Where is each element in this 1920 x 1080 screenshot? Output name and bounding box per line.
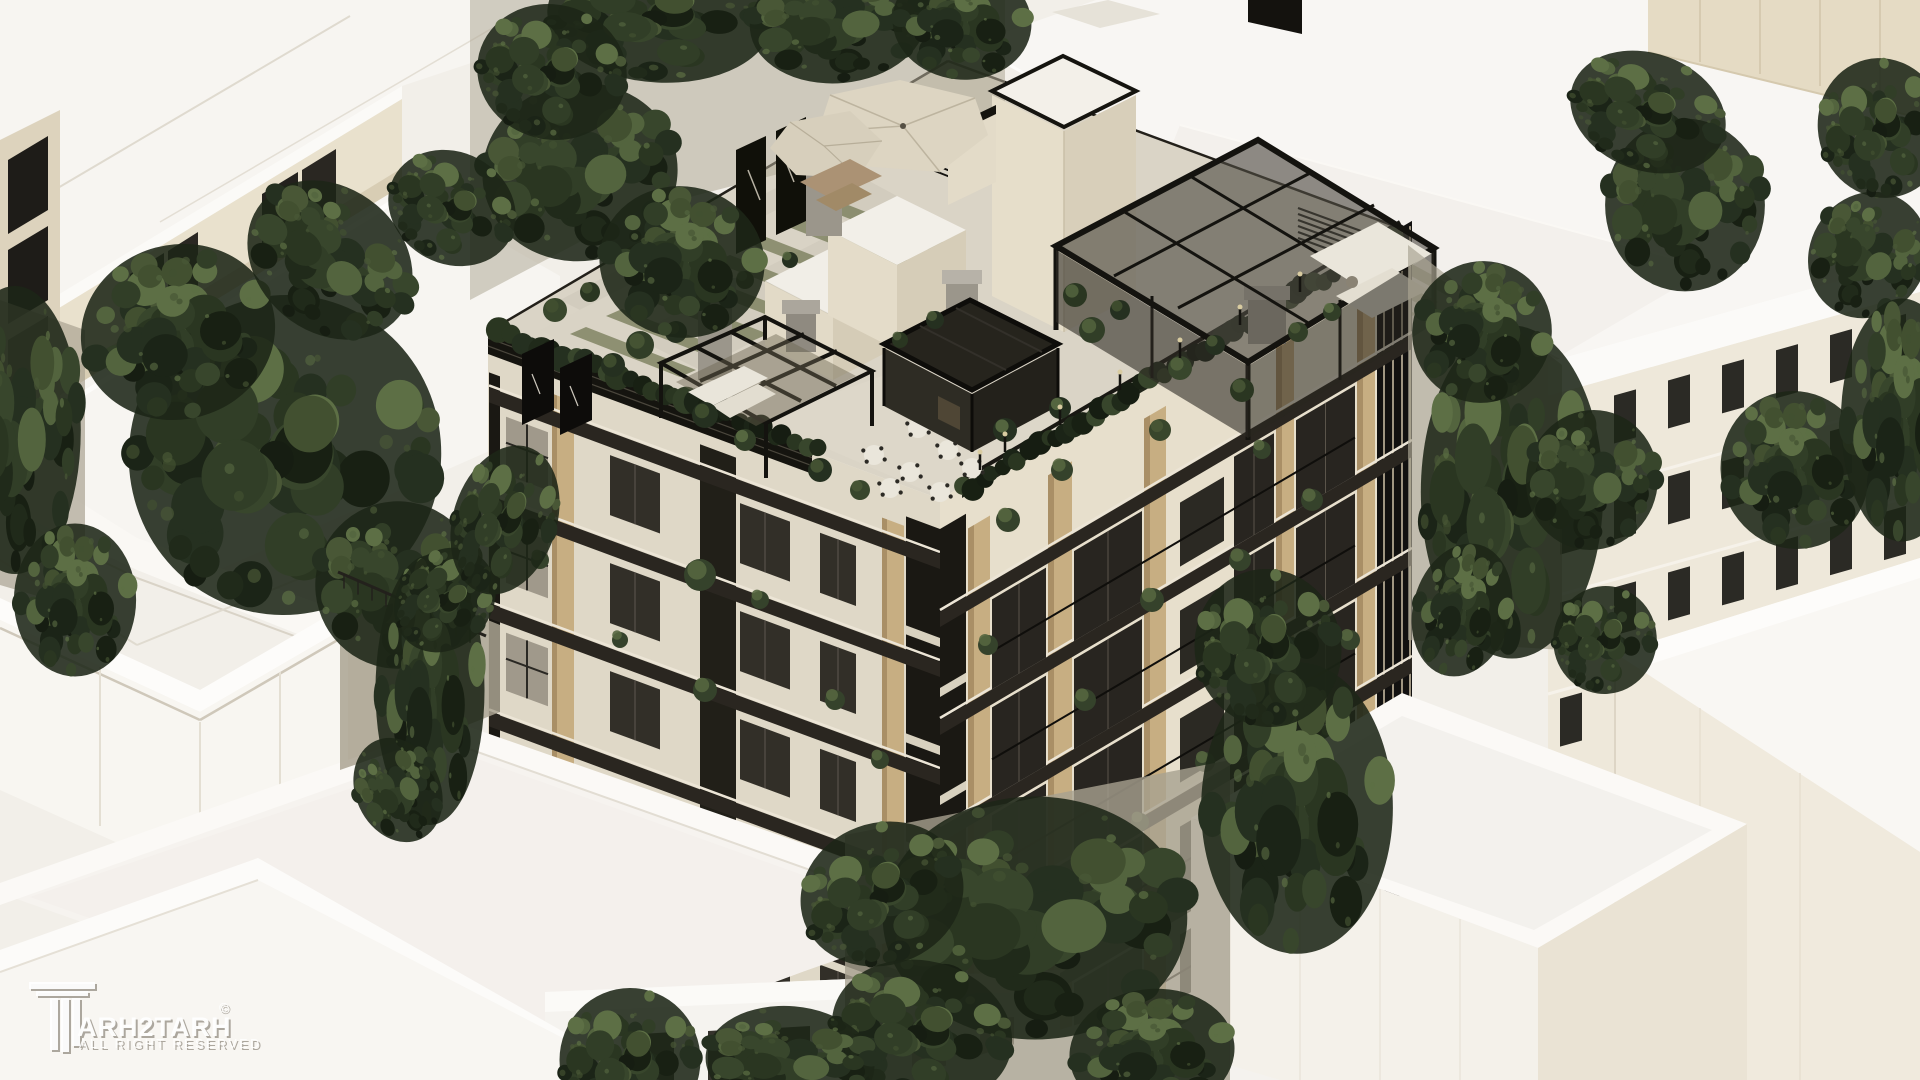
svg-text:ALL RIGHT RESERVED: ALL RIGHT RESERVED bbox=[79, 1037, 262, 1051]
svg-text:©: © bbox=[219, 1000, 229, 1015]
